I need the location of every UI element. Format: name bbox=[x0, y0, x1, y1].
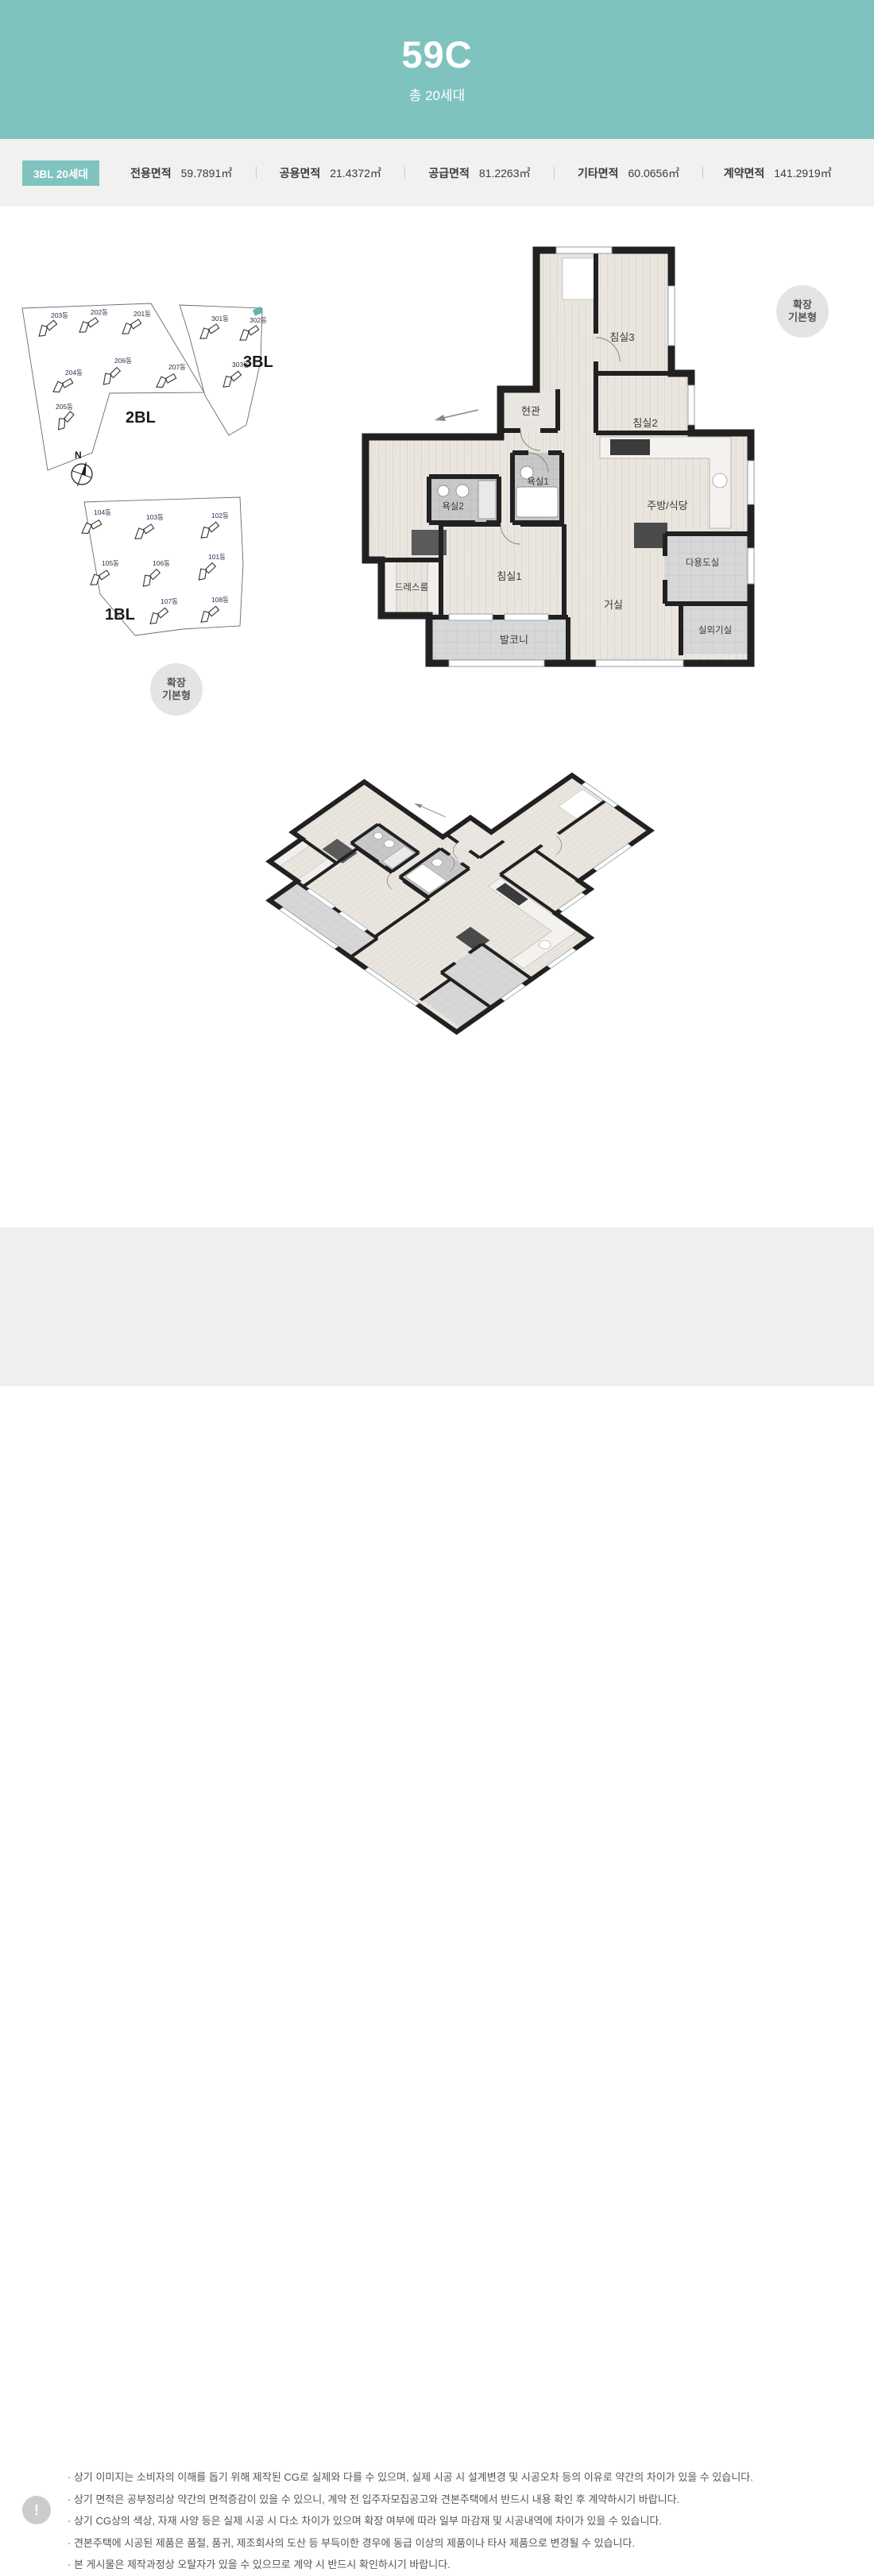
building-label: 108동 bbox=[211, 596, 229, 604]
room-label-balcony: 발코니 bbox=[500, 634, 528, 646]
room-label-bedroom2: 침실2 bbox=[632, 417, 657, 429]
building-label: 107동 bbox=[160, 597, 178, 605]
spec-label: 공용면적 bbox=[280, 165, 321, 181]
building-label: 202동 bbox=[91, 308, 108, 316]
room-label-bedroom1: 침실1 bbox=[497, 570, 521, 582]
exclamation-icon: ! bbox=[22, 2496, 51, 2524]
block-label-2bl: 2BL bbox=[126, 409, 156, 427]
floor-plan-2d bbox=[365, 247, 754, 666]
spec-items: 전용면적 59.7891㎡ 공용면적 21.4372㎡ 공급면적 81.2263… bbox=[107, 165, 852, 181]
spec-value: 60.0656㎡ bbox=[628, 165, 680, 181]
building-label: 205동 bbox=[56, 403, 73, 411]
spec-item-other: 기타면적 60.0656㎡ bbox=[555, 165, 703, 181]
room-label-bedroom3: 침실3 bbox=[609, 331, 634, 343]
badge-line1: 확장 bbox=[793, 299, 812, 311]
spec-label: 전용면적 bbox=[130, 165, 172, 181]
spec-value: 21.4372㎡ bbox=[330, 165, 381, 181]
block-label-3bl: 3BL bbox=[243, 353, 273, 371]
area-spec-strip: 3BL 20세대 전용면적 59.7891㎡ 공용면적 21.4372㎡ 공급면… bbox=[0, 139, 874, 207]
spec-value: 59.7891㎡ bbox=[181, 165, 233, 181]
room-label-dressroom: 드레스룸 bbox=[395, 582, 428, 593]
block-label-1bl: 1BL bbox=[105, 606, 135, 624]
building-label: 206동 bbox=[114, 357, 132, 365]
room-label-living: 거실 bbox=[604, 599, 623, 611]
disclaimer-line: · 견본주택에 시공된 제품은 품절, 품귀, 제조회사의 도산 등 부득이한 … bbox=[68, 2532, 850, 2555]
building-label: 103동 bbox=[146, 513, 164, 521]
building-label: 102동 bbox=[211, 512, 229, 519]
spec-item-contract: 계약면적 141.2919㎡ bbox=[703, 165, 852, 181]
building-label: 207동 bbox=[168, 363, 186, 371]
unit-type-title: 59C bbox=[401, 36, 472, 73]
block-chip: 3BL 20세대 bbox=[22, 160, 99, 186]
spec-value: 141.2919㎡ bbox=[774, 165, 831, 181]
compass-n-label: N bbox=[75, 450, 82, 461]
building-label: 302동 bbox=[249, 316, 267, 324]
building-label: 301동 bbox=[211, 315, 229, 322]
plan-type-badge-3d: 확장 기본형 bbox=[150, 663, 203, 716]
spec-label: 기타면적 bbox=[578, 165, 619, 181]
disclaimer-lines: · 상기 이미지는 소비자의 이해를 돕기 위해 제작된 CG로 실제와 다를 … bbox=[68, 2466, 850, 2576]
building-label: 104동 bbox=[94, 508, 111, 516]
spec-label: 공급면적 bbox=[428, 165, 470, 181]
plan-type-badge: 확장 기본형 bbox=[776, 285, 829, 338]
disclaimer-section: ! · 상기 이미지는 소비자의 이해를 돕기 위해 제작된 CG로 실제와 다… bbox=[0, 1227, 874, 1386]
disclaimer-line: · 상기 이미지는 소비자의 이해를 돕기 위해 제작된 CG로 실제와 다를 … bbox=[68, 2466, 850, 2489]
building-label: 201동 bbox=[133, 310, 151, 318]
site-plan: 203동 202동 201동 204동 206동 207동 205동 301동 … bbox=[22, 303, 273, 635]
building-label: 106동 bbox=[153, 559, 170, 567]
disclaimer-line: · 본 게시물은 제작과정상 오탈자가 있을 수 있으므로 계약 시 반드시 확… bbox=[68, 2554, 850, 2576]
floor-plan-3d bbox=[231, 705, 701, 1035]
spec-label: 계약면적 bbox=[724, 165, 765, 181]
room-label-bath1: 욕실1 bbox=[527, 477, 549, 487]
room-label-kitchen: 주방/식당 bbox=[647, 500, 687, 512]
badge-line2: 기본형 bbox=[788, 311, 817, 324]
unit-count-subtitle: 총 20세대 bbox=[409, 84, 466, 104]
compass-icon: N bbox=[68, 450, 95, 489]
room-label-ac-outdoor: 실외기실 bbox=[698, 625, 732, 635]
main-artwork: 203동 202동 201동 204동 206동 207동 205동 301동 … bbox=[0, 207, 874, 1136]
spec-value: 81.2263㎡ bbox=[479, 165, 531, 181]
spec-item-exclusive: 전용면적 59.7891㎡ bbox=[107, 165, 256, 181]
building-label: 101동 bbox=[208, 553, 226, 561]
building-label: 203동 bbox=[51, 311, 68, 319]
unit-type-header: 59C 총 20세대 bbox=[0, 0, 874, 139]
room-label-entry: 현관 bbox=[521, 405, 540, 417]
spec-item-supply: 공급면적 81.2263㎡ bbox=[405, 165, 554, 181]
building-label: 105동 bbox=[102, 559, 119, 567]
disclaimer-line: · 상기 면적은 공부정리상 약간의 면적증감이 있을 수 있으니, 계약 전 … bbox=[68, 2489, 850, 2511]
spec-item-common: 공용면적 21.4372㎡ bbox=[257, 165, 405, 181]
building-label: 204동 bbox=[65, 369, 83, 377]
room-label-bath2: 욕실2 bbox=[442, 501, 464, 512]
room-label-utility: 다용도실 bbox=[686, 558, 719, 568]
badge-line2: 기본형 bbox=[162, 689, 191, 702]
disclaimer-line: · 상기 CG상의 색상, 자재 사양 등은 실제 시공 시 다소 차이가 있으… bbox=[68, 2510, 850, 2532]
badge-line1: 확장 bbox=[167, 677, 186, 689]
